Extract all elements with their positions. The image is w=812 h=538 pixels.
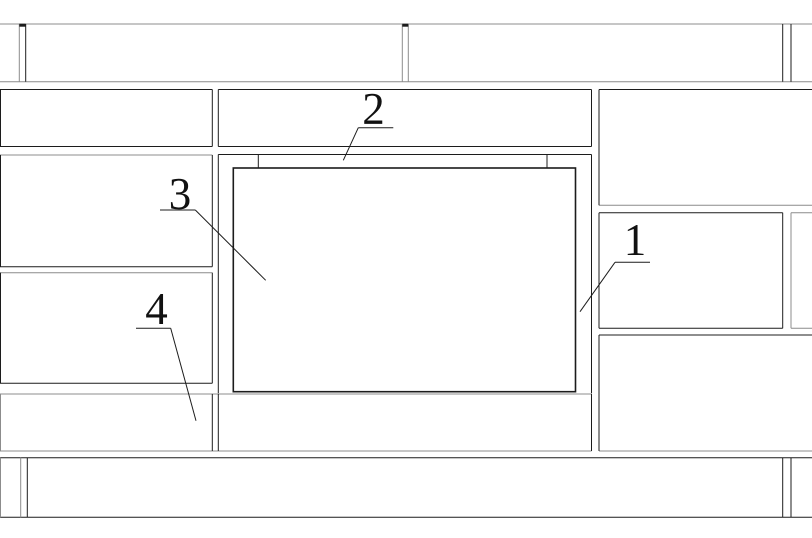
callout-4-leader-line [171,328,196,420]
callout-4-label: 4 [145,284,168,334]
window-frame [233,168,575,392]
callout-3-label: 3 [169,169,192,219]
callout-2-label: 2 [362,84,385,134]
callout-2-leader-line [343,128,358,161]
callout-3-leader-line [195,210,265,280]
cad-elevation-canvas: 1234 [0,0,812,538]
wall-elevation-drawing: 1234 [0,0,812,538]
callout-1-leader-line [580,262,615,311]
callout-1-label: 1 [624,215,647,265]
